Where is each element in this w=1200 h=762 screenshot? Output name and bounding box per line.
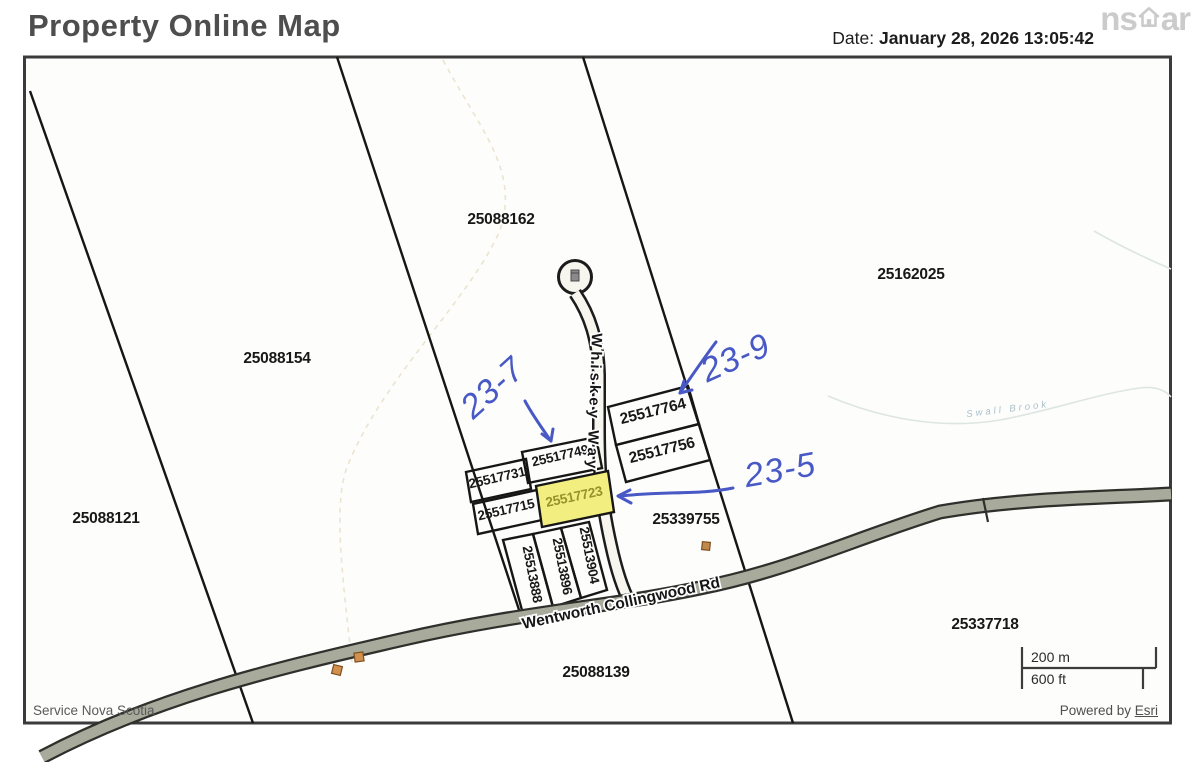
house-icon [1136, 4, 1162, 30]
esri-link[interactable]: Esri [1135, 703, 1158, 718]
parcel-label: 25339755 [652, 511, 720, 528]
logo-text-left: ns [1100, 2, 1137, 35]
date-value: January 28, 2026 13:05:42 [879, 28, 1094, 48]
parcel-label: 25088139 [562, 664, 630, 681]
map-date: Date: January 28, 2026 13:05:42 [832, 28, 1094, 49]
page-title: Property Online Map [28, 8, 341, 44]
property-online-map-page: Swall Brook [0, 0, 1200, 762]
parcel-label: 25162025 [877, 266, 945, 283]
powered-by-label: Powered by [1060, 703, 1135, 718]
parcel-label: 25088162 [467, 211, 534, 228]
map-canvas: Swall Brook [0, 0, 1200, 762]
parcel-label: 25088121 [72, 510, 140, 527]
powered-by-esri: Powered by Esri [1060, 703, 1158, 718]
date-label: Date: [832, 28, 874, 48]
parcel-label: 25337718 [951, 616, 1019, 633]
nsar-logo: ns ar [1100, 2, 1190, 35]
parcel-label: 25088154 [243, 350, 311, 367]
logo-text-right: ar [1161, 2, 1190, 35]
scale-metric-label: 200 m [1031, 649, 1070, 665]
scale-imperial-label: 600 ft [1031, 671, 1066, 687]
service-nova-scotia-label: Service Nova Scotia [33, 703, 155, 718]
cul-de-sac-marker-icon [571, 270, 579, 281]
